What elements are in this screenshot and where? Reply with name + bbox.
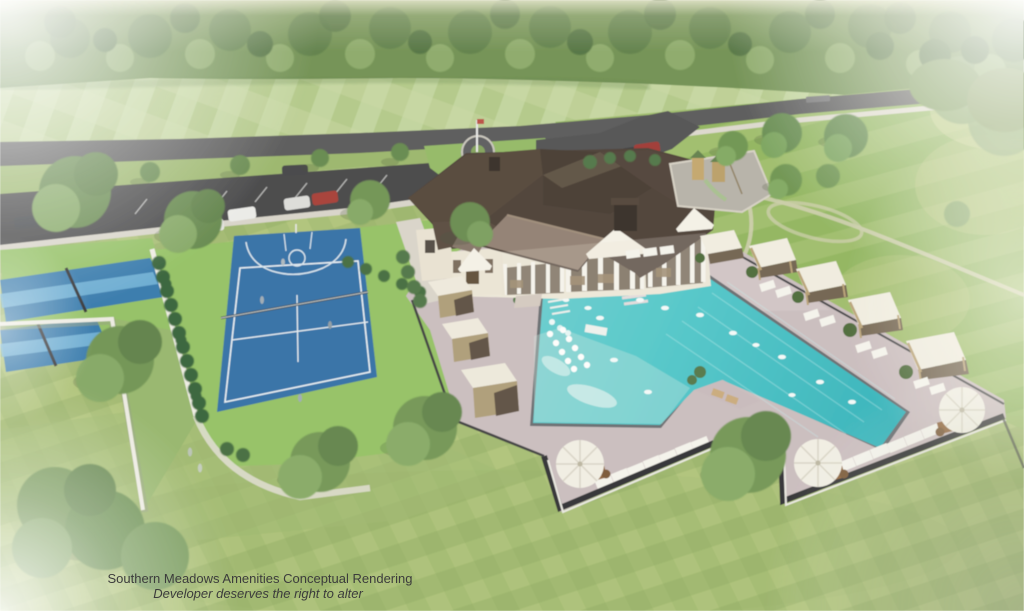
svg-text:Southern Meadows Amenities Con: Southern Meadows Amenities Conceptual Re… [108,571,413,586]
svg-text:Developer deserves the right t: Developer deserves the right to alter [153,586,363,601]
